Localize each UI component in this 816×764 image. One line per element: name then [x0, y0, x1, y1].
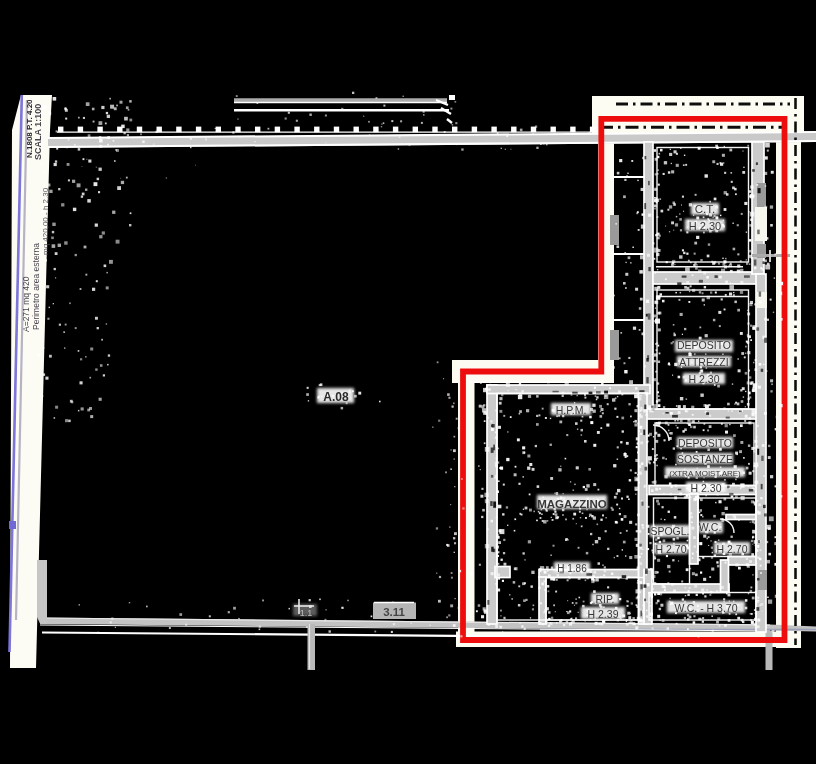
svg-text:1.1: 1.1	[300, 608, 313, 618]
svg-text:W.C.: W.C.	[699, 521, 722, 533]
svg-text:H 2.30: H 2.30	[689, 220, 721, 232]
svg-text:N.1808 P.T. 4.20: N.1808 P.T. 4.20	[25, 99, 34, 158]
svg-text:H 2.30: H 2.30	[689, 373, 720, 385]
svg-text:H 2.30: H 2.30	[691, 482, 722, 494]
svg-text:(XTRA MOIST.ARE): (XTRA MOIST.ARE)	[669, 469, 741, 478]
svg-text:SPOGL.: SPOGL.	[650, 525, 689, 537]
svg-text:H 2.70: H 2.70	[656, 543, 687, 555]
svg-text:H.P.M.: H.P.M.	[556, 404, 587, 416]
svg-text:mq 420,00 - h 2.30: mq 420,00 - h 2.30	[41, 187, 50, 255]
svg-text:W.C. - H 3.70: W.C. - H 3.70	[674, 602, 737, 614]
svg-text:ATTREZZI: ATTREZZI	[679, 356, 728, 368]
svg-text:MAGAZZINO: MAGAZZINO	[537, 498, 607, 510]
svg-text:H 2.39: H 2.39	[588, 608, 619, 620]
svg-text:H 2.70: H 2.70	[717, 543, 748, 555]
svg-text:SOSTANZE: SOSTANZE	[677, 453, 733, 465]
svg-text:A.08: A.08	[323, 390, 349, 404]
svg-text:3.11: 3.11	[383, 606, 405, 618]
svg-text:DEPOSITO: DEPOSITO	[677, 339, 731, 351]
svg-text:A=271 mq 420: A=271 mq 420	[21, 276, 31, 332]
svg-text:DEPOSITO: DEPOSITO	[678, 437, 732, 449]
svg-text:SCALA 1:100: SCALA 1:100	[33, 104, 43, 160]
svg-text:RIP.: RIP.	[595, 593, 614, 605]
svg-text:C.T.: C.T.	[695, 203, 715, 215]
svg-text:Perimetro area esterna: Perimetro area esterna	[31, 243, 41, 330]
svg-text:H 1.86: H 1.86	[557, 563, 587, 574]
